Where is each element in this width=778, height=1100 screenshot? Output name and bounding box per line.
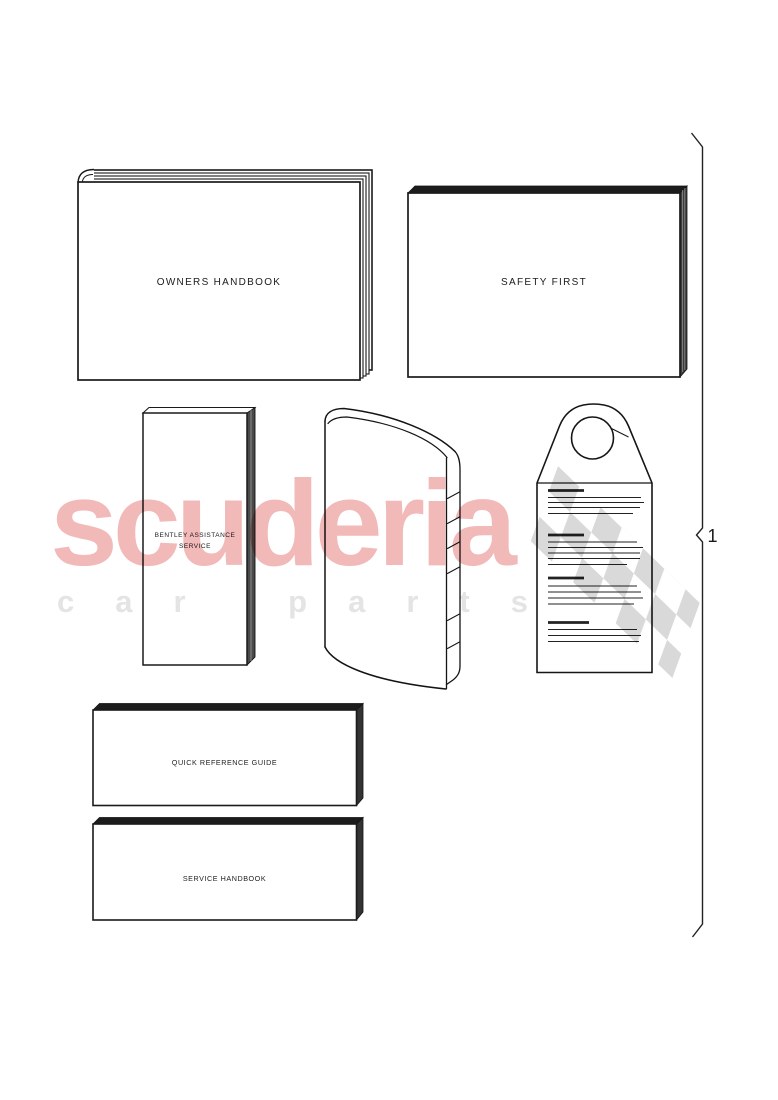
booklet-front-cover (143, 413, 247, 665)
bentley-assistance-service: BENTLEY ASSISTANCE SERVICE (143, 408, 255, 666)
booklet-side-edge (357, 704, 364, 806)
service-handbook: SERVICE HANDBOOK (93, 818, 363, 921)
tag-hole (572, 417, 614, 459)
callout-bracket (692, 133, 703, 937)
booklet-top-edge (408, 186, 687, 193)
booklet-front-cover (93, 824, 357, 920)
quick-reference-guide: QUICK REFERENCE GUIDE (93, 704, 363, 806)
booklet-top-edge (93, 818, 363, 825)
booklet-top-edge (93, 704, 363, 711)
bentley-assistance-label-line1: BENTLEY ASSISTANCE (155, 532, 236, 539)
owners-handbook: OWNERS HANDBOOK (77, 168, 373, 380)
safety-first-label: SAFETY FIRST (501, 277, 587, 288)
hang-tag (537, 404, 652, 673)
parts-diagram-page: OWNERS HANDBOOK SAFETY FIRST BENTLEY ASS… (0, 0, 778, 1100)
safety-first: SAFETY FIRST (408, 186, 687, 377)
booklet-side-edge (357, 818, 364, 921)
service-handbook-label: SERVICE HANDBOOK (183, 874, 266, 883)
diagram-artwork: OWNERS HANDBOOK SAFETY FIRST BENTLEY ASS… (0, 0, 778, 1100)
bentley-assistance-label-line2: SERVICE (179, 543, 211, 550)
document-wallet (325, 408, 460, 689)
booklet-top-edge (143, 408, 255, 414)
callout-number: 1 (708, 526, 718, 546)
booklet-side-edge (680, 186, 687, 377)
callout: 1 (692, 133, 718, 937)
quick-reference-guide-label: QUICK REFERENCE GUIDE (172, 758, 277, 767)
owners-handbook-label: OWNERS HANDBOOK (157, 277, 282, 288)
